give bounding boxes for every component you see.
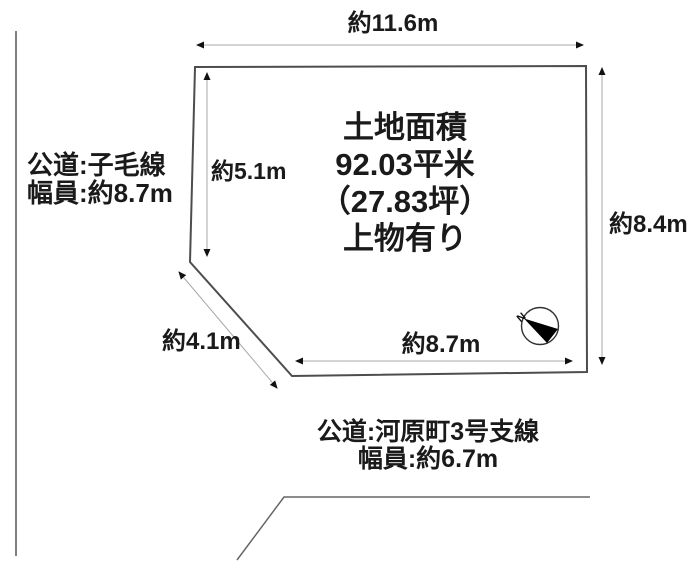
- dim-label-left-inner: 約5.1m: [211, 160, 286, 183]
- dim-label-right: 約8.4m: [609, 213, 688, 237]
- road-label-bottom: 公道:河原町3号支線 幅員:約6.7m: [317, 419, 539, 473]
- road-bottom-width: 幅員:約6.7m: [317, 446, 539, 473]
- road-bottom-name: 公道:河原町3号支線: [317, 419, 539, 446]
- compass: N: [515, 308, 559, 345]
- road-left-name: 公道:子毛線: [27, 151, 173, 179]
- plot-area-text: 土地面積 92.03平米 （27.83坪） 上物有り: [320, 109, 491, 257]
- plot-area-line2: 92.03平米: [320, 146, 491, 183]
- plot-area-line4: 上物有り: [320, 220, 491, 257]
- land-survey-diagram: N 約11.6m 約5.1m 約8.4m 約8.7m 約4.1m 土地面積 92…: [0, 0, 691, 566]
- road-left-width: 幅員:約8.7m: [27, 179, 173, 207]
- plot-area-line1: 土地面積: [320, 109, 491, 146]
- plot-area-line3: （27.83坪）: [320, 183, 491, 220]
- dim-label-top: 約11.6m: [348, 12, 439, 36]
- road-label-left: 公道:子毛線 幅員:約8.7m: [27, 151, 173, 207]
- dim-label-bottom-inner: 約8.7m: [402, 333, 481, 357]
- diagram-canvas: N: [0, 0, 691, 566]
- dim-label-diagonal: 約4.1m: [162, 330, 241, 354]
- road-edge-bottom-line: [237, 497, 590, 560]
